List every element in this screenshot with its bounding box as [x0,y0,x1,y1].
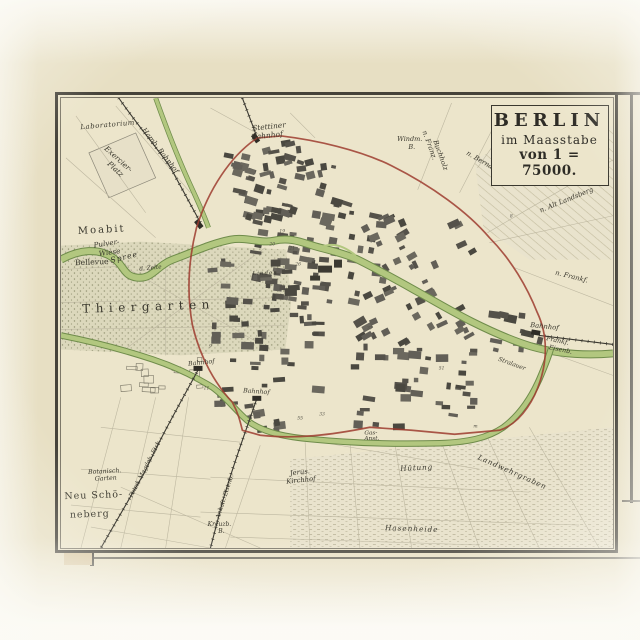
adjacent-sheet-bottom-border [93,557,640,559]
map-label-neu-schoe: Neu Schö- [64,489,123,502]
title-cartouche: BERLIN im Maasstabe von 1 = 75000. [491,105,609,186]
map-numeral: 7 [179,305,182,311]
map-numeral: 37 [367,325,373,331]
map-numeral: 11 [203,385,209,391]
map-label-hasenheide: Hasenheide [383,523,438,534]
map-label-windm-b: B. [407,142,415,150]
map-numeral: 19 [279,228,285,234]
map-numeral: 51 [438,365,444,371]
map-numeral: 20 [268,241,275,247]
map-label-windm: Windm. [397,134,422,142]
map-numeral: 21 [288,245,295,251]
berlin-map: LaboratoriumExercier-PlatzHamb. BahnhofS… [60,97,614,549]
antique-berlin-map-print: LaboratoriumExercier-PlatzHamb. BahnhofS… [0,0,640,640]
map-label-garten: Garten [94,474,116,482]
map-label-neberg: neberg [69,508,109,520]
map-label-kreuzb: Kreuzb. [206,521,231,528]
berlin-map-frame: LaboratoriumExercier-PlatzHamb. BahnhofS… [55,92,618,553]
map-subtitle: im Maasstabe [494,133,606,147]
map-label-bellevue: Bellevue [74,257,109,267]
map-label-huetung: Hütung [399,462,433,473]
map-title: BERLIN [494,111,606,131]
adjacent-sheet-top-border [618,92,640,95]
map-numeral: 9 [209,343,212,349]
adjacent-sheet-corner-line [622,500,640,502]
map-numeral: 55 [297,415,303,421]
map-label-linden: Linden [251,270,277,277]
map-label-kreuzb-b: B. [217,528,224,535]
adjacent-sheet-right-border [630,92,633,503]
map-numeral: 26 [294,261,301,267]
map-numeral: 33 [319,411,325,417]
map-scale: von 1 = 75000. [494,147,606,179]
map-label-anst: Anst. [363,436,379,442]
map-numeral: m [473,424,477,429]
map-numeral: 8 [509,213,512,219]
